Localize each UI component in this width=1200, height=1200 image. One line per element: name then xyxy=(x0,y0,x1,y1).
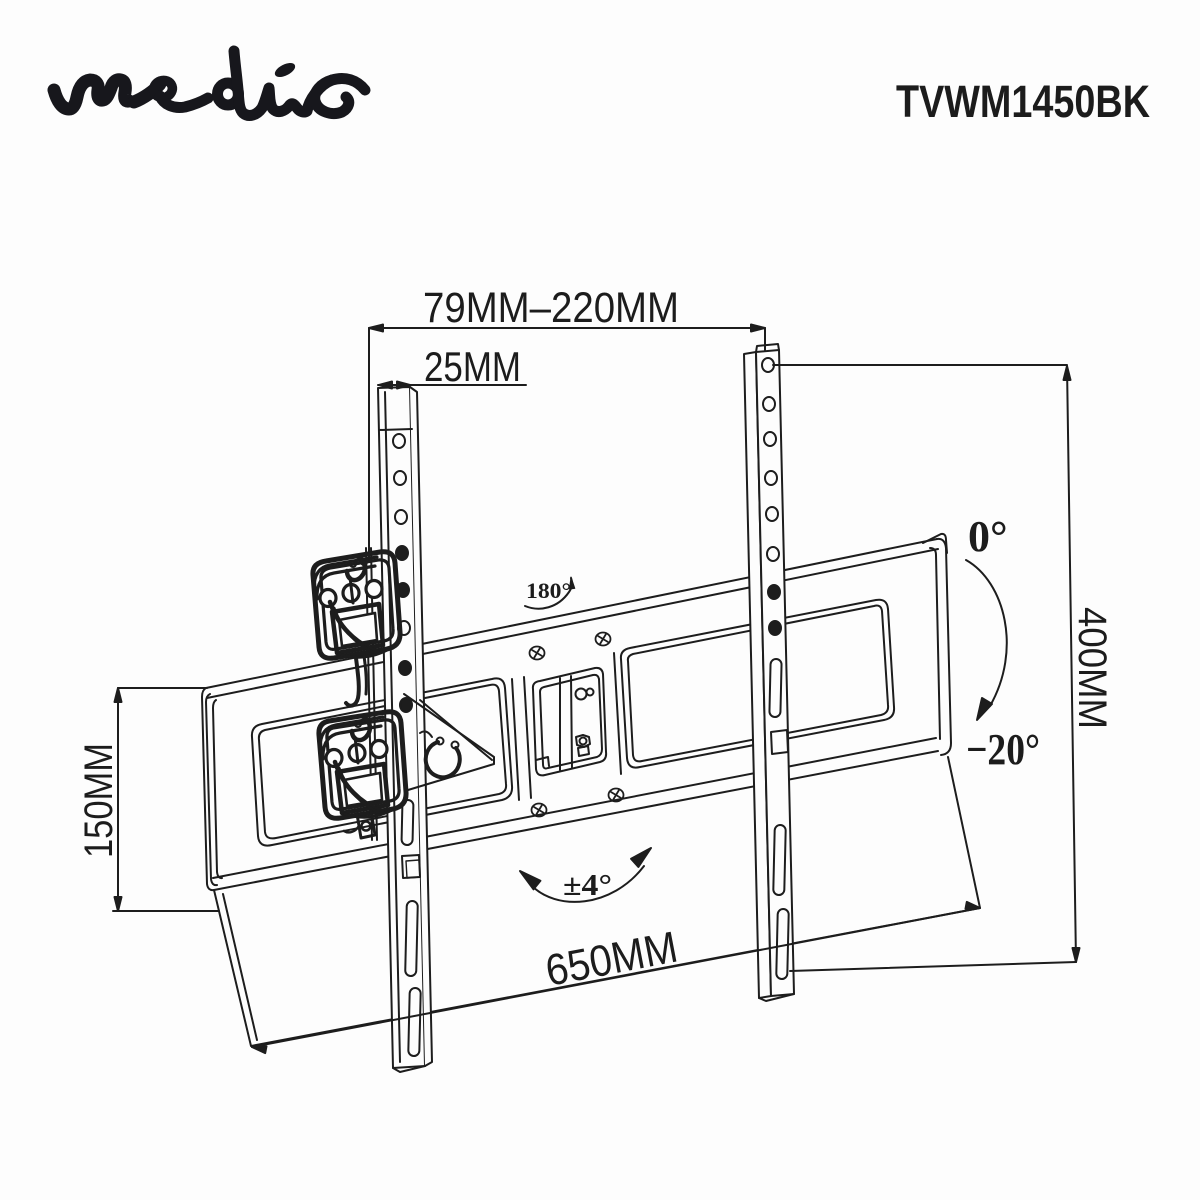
svg-text:400MM: 400MM xyxy=(1070,607,1114,729)
svg-text:25MM: 25MM xyxy=(424,343,521,390)
svg-text:TVWM1450BK: TVWM1450BK xyxy=(896,76,1150,127)
svg-text:−20°: −20° xyxy=(966,725,1040,774)
svg-text:150MM: 150MM xyxy=(77,743,121,858)
svg-text:650MM: 650MM xyxy=(542,923,682,996)
svg-text:0°: 0° xyxy=(968,512,1008,561)
svg-text:180°: 180° xyxy=(526,578,571,603)
svg-text:79MM–220MM: 79MM–220MM xyxy=(423,284,679,332)
